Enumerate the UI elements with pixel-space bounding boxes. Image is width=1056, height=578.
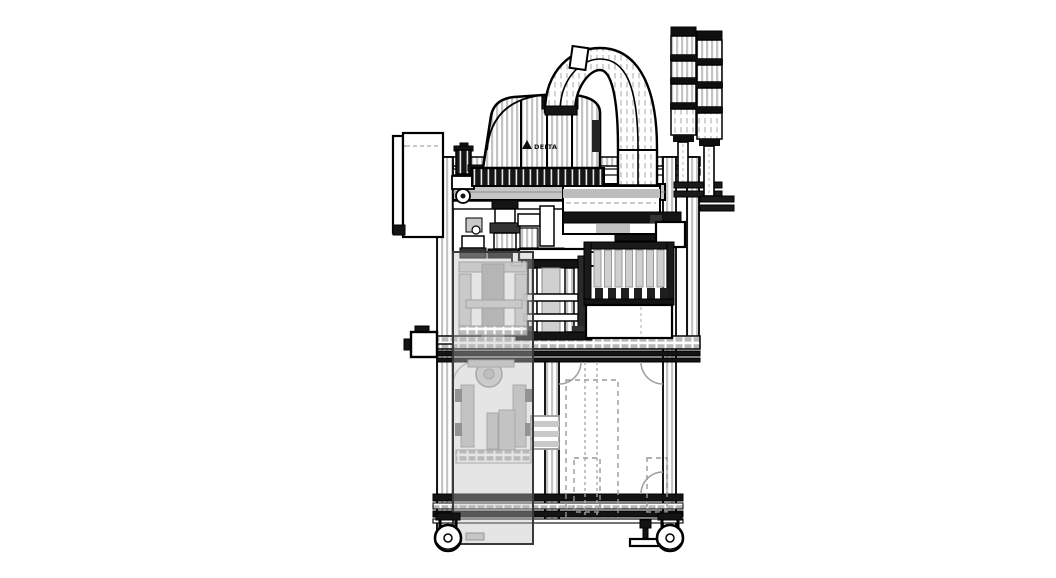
caster-wheel-right [657, 513, 683, 551]
chain-apex-link [570, 46, 589, 70]
tower-segment-4 [697, 113, 722, 139]
leveling-foot-right [630, 520, 660, 546]
tower-segment-3 [671, 84, 696, 103]
tower-segment-2 [697, 65, 722, 82]
chain-start-anchor [545, 106, 577, 115]
monitor-back-plate [393, 136, 403, 233]
machine-elevation-drawing: DELTA [0, 0, 1056, 578]
tower-clamp [700, 196, 734, 202]
tower-cap [697, 31, 722, 40]
monitor-panel [393, 133, 443, 237]
tower-segment-4 [671, 109, 696, 135]
scara-robot-body: DELTA [472, 94, 604, 186]
tower-segment-3 [697, 88, 722, 107]
feeder-top-rail [584, 242, 674, 249]
caster-wheel-left [435, 513, 461, 551]
ghost-door-panel [453, 252, 533, 544]
feeder-feet [595, 288, 668, 299]
robot-logo-text: DELTA [534, 143, 557, 151]
tower-segment-1 [697, 40, 722, 59]
tower-segment-2 [671, 61, 696, 78]
slat-feeder-magazine [584, 242, 674, 338]
tower-segment-1 [671, 36, 696, 55]
ghost-foot [466, 533, 484, 540]
monitor-body [403, 133, 443, 237]
cad-drawing-canvas: DELTA [0, 0, 1056, 578]
feeder-base-box [586, 305, 672, 338]
monitor-hinge [393, 225, 405, 235]
caster-plate [658, 513, 682, 520]
robot-plinth [472, 168, 604, 186]
foot-pad [630, 539, 660, 546]
feeder-slats [594, 250, 664, 287]
caster-plate [436, 513, 460, 520]
tower-cap [671, 27, 696, 36]
tower-pole [704, 146, 714, 196]
